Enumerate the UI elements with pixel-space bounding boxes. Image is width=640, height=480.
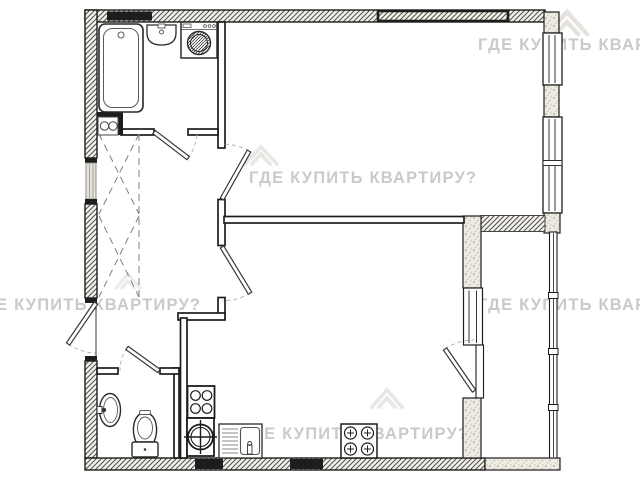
wall-central (224, 217, 464, 224)
balcony-door-frame (476, 345, 484, 398)
outer-walls (85, 10, 560, 470)
right-wall (481, 12, 562, 458)
wall-left (85, 10, 97, 158)
interior-walls (97, 22, 464, 458)
window-lower-right (543, 117, 562, 213)
electric-stove-4-burner (188, 386, 215, 418)
wc-fixtures (97, 394, 158, 458)
bathroom-door-leaf (153, 130, 190, 159)
floor-plan-page: ГДЕ КУПИТЬ КВАРТИРУ? ГДЕ КУПИТЬ КВАРТИРУ… (0, 0, 640, 480)
built-in-wardrobe-dashed (99, 134, 139, 297)
watermark-text: ГДЕ КУПИТЬ КВАРТИРУ? (0, 296, 201, 314)
bathroom-door-arc (188, 132, 197, 158)
wall-bottom-block (290, 459, 323, 469)
pier (544, 213, 560, 233)
wall-left (85, 204, 97, 298)
watermark-text: ГДЕ КУПИТЬ КВАРТИРУ? (249, 169, 477, 187)
pier (463, 216, 481, 288)
living-room-door-arc (222, 144, 249, 151)
balcony-door-leaf (443, 348, 475, 392)
wall-cap (85, 158, 97, 163)
house-logo-icon (372, 390, 402, 407)
living-room-door-leaf (220, 150, 250, 200)
loggia-glazing (549, 232, 559, 458)
wall-left (85, 361, 97, 458)
washbasin (147, 24, 176, 45)
wc-door-leaf (126, 346, 160, 372)
wall-wc-right (174, 368, 179, 458)
glazing-mullion (549, 349, 559, 355)
kitchen-door-arc (222, 293, 250, 301)
door-arcs (68, 132, 474, 371)
kitchen-fixtures (184, 386, 377, 458)
wc-door-arc (120, 348, 127, 371)
wall-cap (85, 356, 97, 361)
cabinet-two-knobs (98, 117, 118, 135)
pier (544, 85, 559, 117)
entrance-door-arc (68, 344, 96, 353)
wall-wc-top-left (97, 368, 118, 374)
wall-bottom (85, 458, 485, 470)
sink-with-drainboard (219, 424, 262, 458)
pier (544, 12, 559, 33)
wall-wc-top-right (160, 368, 179, 374)
floor-plan-drawing: ГДЕ КУПИТЬ КВАРТИРУ? ГДЕ КУПИТЬ КВАРТИРУ… (0, 0, 640, 480)
washing-machine (181, 22, 217, 58)
house-logo-icon (116, 274, 140, 288)
wall-top-lintel (378, 11, 508, 21)
window-upper-right (543, 33, 562, 85)
pier (463, 398, 481, 458)
balcony-partition (463, 216, 484, 458)
loggia-top-wall (481, 216, 545, 232)
loggia-bottom-wall (485, 458, 560, 470)
bathtub (99, 24, 143, 112)
wall-top-vent-block (107, 12, 152, 21)
wall-bathroom-bottom-left (121, 129, 154, 135)
gas-stove-4-burner (341, 424, 377, 458)
toilet (132, 411, 158, 458)
wall-step-black (119, 112, 124, 135)
glazing-mullion (549, 293, 559, 299)
wall-bathroom-bottom-right (188, 129, 218, 135)
house-logo-icon (245, 147, 277, 164)
left-wall-niche (86, 163, 96, 199)
bathroom-fixtures (98, 22, 217, 135)
wall-cap (85, 199, 97, 204)
corner-washbasin (97, 394, 121, 427)
glazing-mullion (549, 405, 559, 411)
kitchen-window (464, 288, 483, 345)
watermark-text: ГДЕ КУПИТЬ КВАРТИРУ? (478, 296, 640, 314)
wall-bottom-block (195, 459, 223, 469)
round-hob (184, 418, 217, 456)
wall-hall-room (218, 22, 225, 148)
kitchen-door-leaf (220, 246, 251, 294)
